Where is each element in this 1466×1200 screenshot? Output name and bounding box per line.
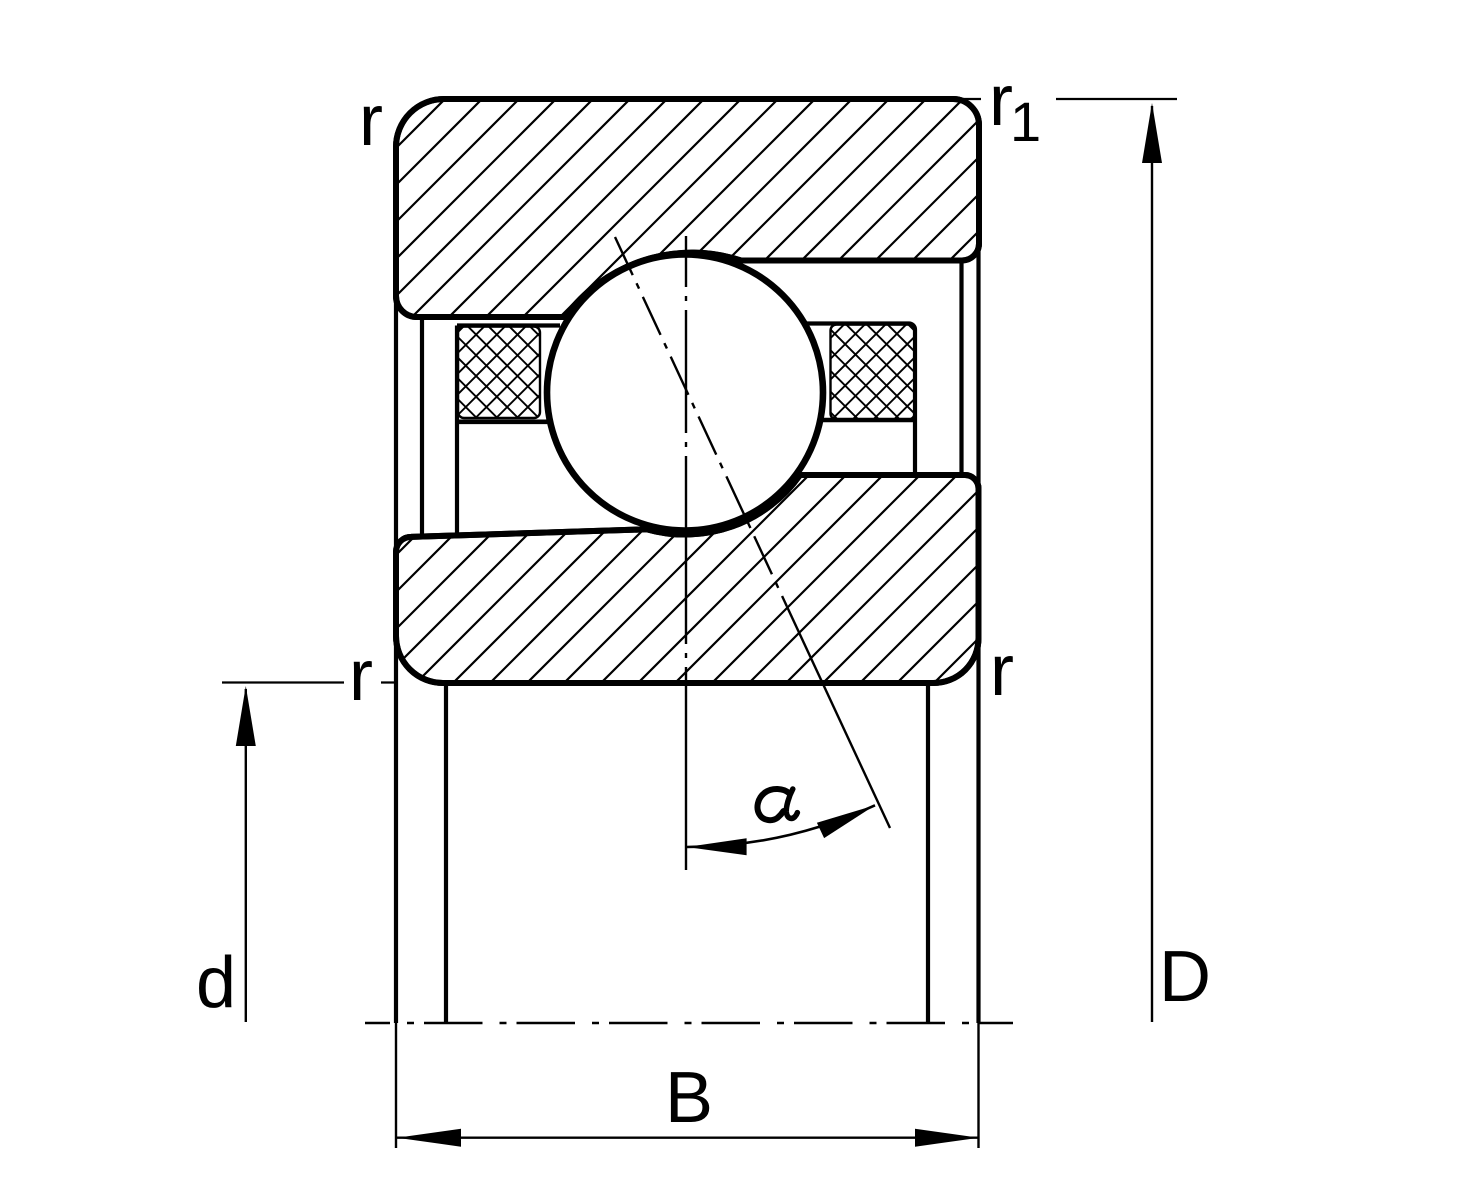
svg-text:1: 1 bbox=[1010, 90, 1041, 153]
svg-text:B: B bbox=[665, 1058, 713, 1138]
svg-text:r: r bbox=[359, 81, 383, 161]
svg-text:r: r bbox=[349, 636, 373, 716]
svg-text:r: r bbox=[990, 631, 1014, 711]
svg-text:d: d bbox=[196, 943, 236, 1023]
svg-text:D: D bbox=[1159, 937, 1211, 1017]
